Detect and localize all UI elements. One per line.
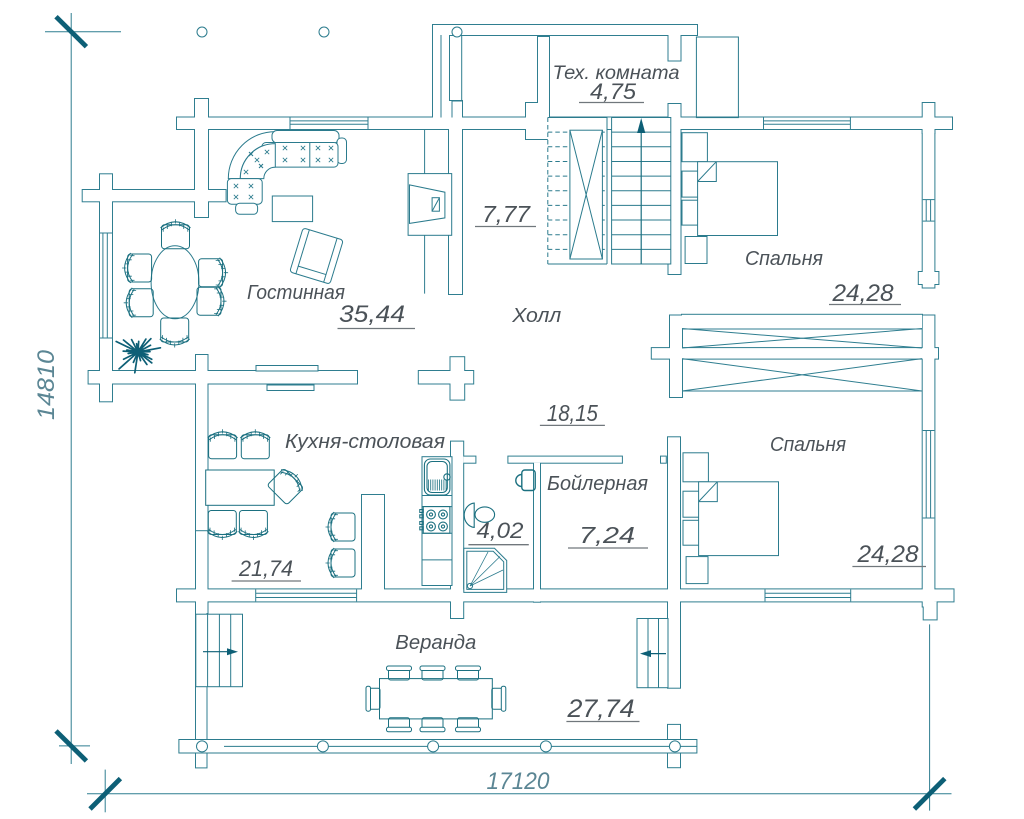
svg-text:7,77: 7,77 — [482, 201, 531, 227]
svg-text:17120: 17120 — [487, 768, 551, 795]
svg-text:4,75: 4,75 — [590, 79, 637, 104]
svg-text:Спальня: Спальня — [770, 434, 846, 456]
svg-text:24,28: 24,28 — [856, 541, 919, 568]
svg-text:14810: 14810 — [33, 349, 60, 420]
svg-text:Гостинная: Гостинная — [247, 282, 345, 304]
svg-text:24,28: 24,28 — [831, 280, 894, 307]
svg-text:Холл: Холл — [511, 305, 561, 327]
svg-text:27,74: 27,74 — [566, 695, 634, 723]
svg-text:18,15: 18,15 — [547, 400, 598, 426]
svg-text:4,02: 4,02 — [477, 518, 524, 543]
svg-text:Кухня-столовая: Кухня-столовая — [285, 431, 445, 453]
svg-text:7,24: 7,24 — [579, 522, 635, 548]
svg-text:Веранда: Веранда — [395, 632, 476, 654]
svg-text:Бойлерная: Бойлерная — [547, 473, 648, 495]
svg-text:35,44: 35,44 — [339, 301, 405, 328]
svg-text:21,74: 21,74 — [238, 556, 293, 581]
svg-text:Спальня: Спальня — [745, 248, 823, 270]
